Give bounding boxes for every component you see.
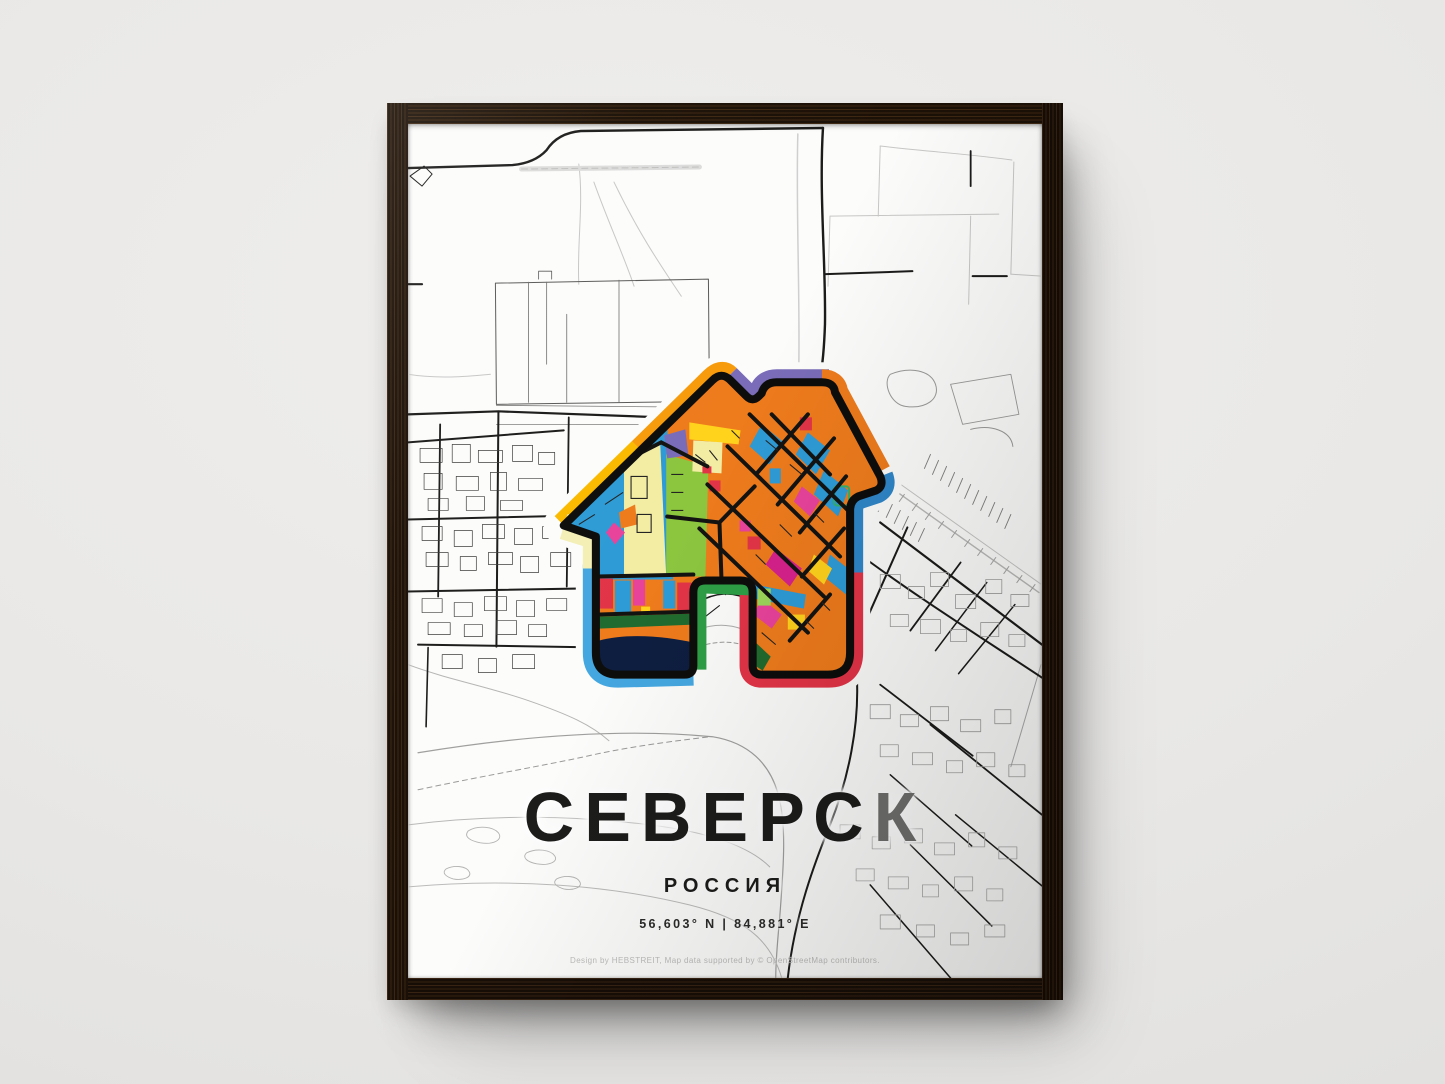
city-map-graphic [408, 124, 1042, 978]
house-map-icon [549, 354, 901, 694]
frame-left-rail [387, 103, 408, 1000]
map-poster: СЕВЕРСК РОССИЯ 56,603° N | 84,881° E Des… [408, 124, 1042, 978]
frame-right-rail [1042, 103, 1063, 1000]
frame-top-rail [387, 103, 1063, 124]
wall: СЕВЕРСК РОССИЯ 56,603° N | 84,881° E Des… [0, 0, 1445, 1084]
frame-bottom-rail [387, 978, 1063, 1000]
picture-frame: СЕВЕРСК РОССИЯ 56,603° N | 84,881° E Des… [387, 103, 1063, 1000]
